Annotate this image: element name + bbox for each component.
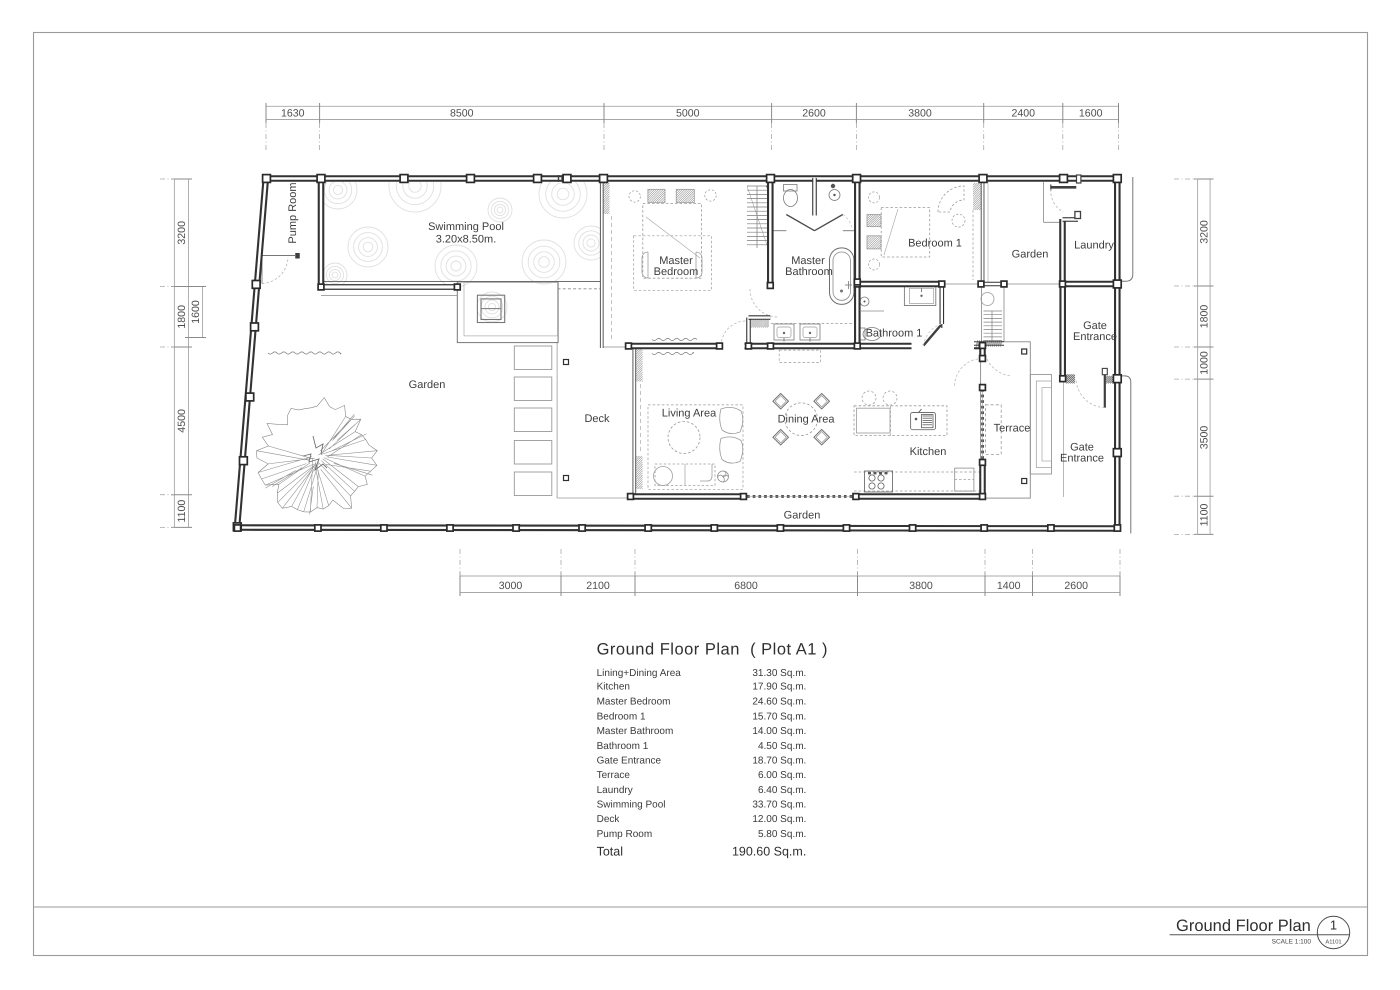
svg-text:1630: 1630 <box>281 108 305 120</box>
svg-text:Ground Floor Plan: Ground Floor Plan <box>1176 917 1311 935</box>
svg-text:Lining+Dining Area: Lining+Dining Area <box>597 668 682 679</box>
svg-text:Garden: Garden <box>409 379 446 391</box>
svg-text:Master Bedroom: Master Bedroom <box>597 697 671 708</box>
svg-text:Bedroom 1: Bedroom 1 <box>908 238 962 250</box>
svg-text:33.70 Sq.m.: 33.70 Sq.m. <box>752 800 806 811</box>
svg-text:Bathroom 1: Bathroom 1 <box>597 741 649 752</box>
svg-text:2600: 2600 <box>1064 580 1088 592</box>
svg-text:Bathroom: Bathroom <box>785 266 833 278</box>
svg-text:18.70 Sq.m.: 18.70 Sq.m. <box>752 756 806 767</box>
svg-text:SCALE 1:100: SCALE 1:100 <box>1272 939 1312 946</box>
svg-text:Bedroom 1: Bedroom 1 <box>597 711 646 722</box>
svg-text:190.60 Sq.m.: 190.60 Sq.m. <box>732 845 806 859</box>
svg-text:4.50 Sq.m.: 4.50 Sq.m. <box>758 741 806 752</box>
svg-text:Kitchen: Kitchen <box>597 682 630 693</box>
svg-text:4500: 4500 <box>176 409 188 433</box>
svg-text:5000: 5000 <box>676 108 700 120</box>
svg-text:1400: 1400 <box>997 580 1021 592</box>
svg-text:Kitchen: Kitchen <box>910 446 947 458</box>
svg-text:Laundry: Laundry <box>1074 240 1114 252</box>
svg-text:Garden: Garden <box>1012 249 1049 261</box>
svg-text:2600: 2600 <box>802 108 826 120</box>
svg-text:Living Area: Living Area <box>662 408 717 420</box>
svg-text:3800: 3800 <box>908 108 932 120</box>
svg-text:Swimming Pool: Swimming Pool <box>428 221 504 233</box>
svg-text:3.20x8.50m.: 3.20x8.50m. <box>436 234 497 246</box>
svg-text:3200: 3200 <box>176 221 188 245</box>
svg-text:Deck: Deck <box>597 814 621 825</box>
svg-text:1800: 1800 <box>1198 305 1210 329</box>
svg-text:17.90 Sq.m.: 17.90 Sq.m. <box>752 682 806 693</box>
svg-text:Swimming Pool: Swimming Pool <box>597 800 666 811</box>
svg-text:5.80 Sq.m.: 5.80 Sq.m. <box>758 829 806 840</box>
svg-text:14.00 Sq.m.: 14.00 Sq.m. <box>752 726 806 737</box>
svg-text:3800: 3800 <box>909 580 933 592</box>
svg-text:31.30 Sq.m.: 31.30 Sq.m. <box>752 668 806 679</box>
svg-text:2400: 2400 <box>1012 108 1036 120</box>
svg-text:Garden: Garden <box>784 510 821 522</box>
svg-text:1100: 1100 <box>1198 504 1210 527</box>
svg-text:3500: 3500 <box>1198 426 1210 450</box>
svg-text:Pump Room: Pump Room <box>287 182 299 243</box>
svg-text:Gate Entrance: Gate Entrance <box>597 756 662 767</box>
svg-text:1800: 1800 <box>176 305 188 329</box>
svg-text:Entrance: Entrance <box>1073 331 1117 343</box>
svg-text:6800: 6800 <box>734 580 758 592</box>
svg-text:3200: 3200 <box>1198 220 1210 244</box>
svg-text:A1101: A1101 <box>1325 939 1341 946</box>
svg-text:Master Bathroom: Master Bathroom <box>597 726 674 737</box>
svg-text:15.70 Sq.m.: 15.70 Sq.m. <box>752 711 806 722</box>
svg-text:1: 1 <box>1330 918 1337 933</box>
svg-text:3000: 3000 <box>499 580 523 592</box>
svg-text:6.00 Sq.m.: 6.00 Sq.m. <box>758 770 806 781</box>
svg-text:Dining Area: Dining Area <box>778 414 836 426</box>
svg-text:Pump Room: Pump Room <box>597 829 653 840</box>
svg-text:8500: 8500 <box>450 108 474 120</box>
svg-text:Terrace: Terrace <box>994 423 1031 435</box>
svg-text:Bedroom: Bedroom <box>654 266 699 278</box>
svg-text:Bathroom 1: Bathroom 1 <box>866 328 923 340</box>
svg-text:Ground Floor Plan ( Plot A1 ): Ground Floor Plan ( Plot A1 ) <box>597 641 828 659</box>
svg-text:1100: 1100 <box>176 500 188 523</box>
svg-text:1600: 1600 <box>1079 108 1103 120</box>
svg-text:Terrace: Terrace <box>597 770 631 781</box>
svg-text:6.40 Sq.m.: 6.40 Sq.m. <box>758 785 806 796</box>
svg-text:12.00 Sq.m.: 12.00 Sq.m. <box>752 814 806 825</box>
svg-text:Entrance: Entrance <box>1060 453 1104 465</box>
svg-text:Total: Total <box>597 845 623 859</box>
svg-text:Laundry: Laundry <box>597 785 633 796</box>
svg-text:1000: 1000 <box>1198 351 1210 375</box>
svg-text:2100: 2100 <box>586 580 610 592</box>
svg-text:Deck: Deck <box>584 413 610 425</box>
svg-text:24.60 Sq.m.: 24.60 Sq.m. <box>752 697 806 708</box>
svg-text:1600: 1600 <box>190 300 202 324</box>
